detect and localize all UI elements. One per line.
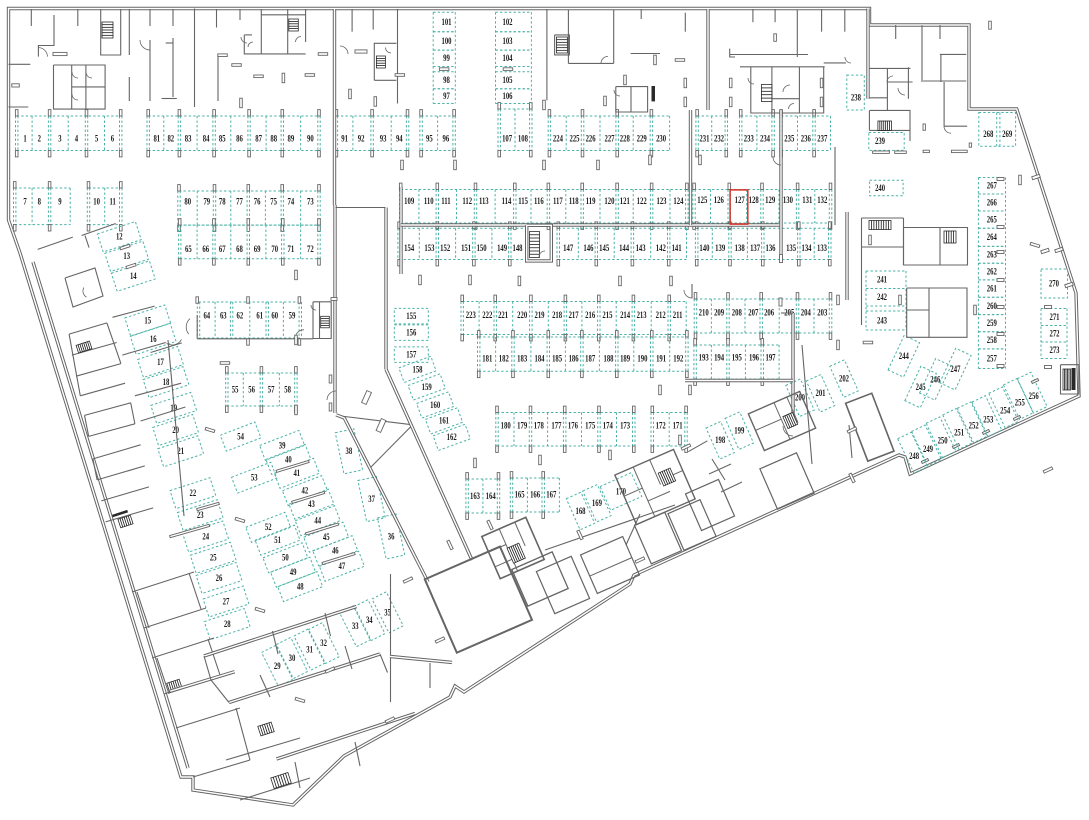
svg-text:171: 171 <box>673 420 683 430</box>
svg-text:71: 71 <box>288 244 295 254</box>
svg-text:211: 211 <box>673 310 683 320</box>
svg-text:115: 115 <box>518 196 528 206</box>
svg-text:207: 207 <box>748 307 758 317</box>
svg-text:45: 45 <box>323 532 330 542</box>
svg-text:8: 8 <box>38 196 41 206</box>
svg-text:153: 153 <box>424 243 434 253</box>
svg-text:233: 233 <box>744 133 754 143</box>
svg-text:206: 206 <box>764 307 774 317</box>
svg-text:236: 236 <box>801 133 811 143</box>
svg-text:53: 53 <box>251 472 258 482</box>
svg-text:14: 14 <box>130 271 137 281</box>
svg-text:41: 41 <box>293 468 300 478</box>
svg-text:135: 135 <box>786 243 796 253</box>
svg-text:141: 141 <box>672 243 682 253</box>
svg-text:123: 123 <box>656 196 666 206</box>
svg-text:216: 216 <box>585 310 595 320</box>
svg-text:269: 269 <box>1002 129 1012 139</box>
svg-text:182: 182 <box>499 353 509 363</box>
svg-text:76: 76 <box>254 196 261 206</box>
svg-text:91: 91 <box>341 133 348 143</box>
svg-text:69: 69 <box>254 244 261 254</box>
svg-text:197: 197 <box>765 352 775 362</box>
svg-text:28: 28 <box>224 619 231 629</box>
svg-text:82: 82 <box>167 133 174 143</box>
svg-text:95: 95 <box>426 133 433 143</box>
svg-text:193: 193 <box>699 352 709 362</box>
svg-text:74: 74 <box>288 196 295 206</box>
svg-text:126: 126 <box>714 195 724 205</box>
svg-text:235: 235 <box>784 133 794 143</box>
svg-text:44: 44 <box>314 515 321 525</box>
svg-text:213: 213 <box>637 310 647 320</box>
svg-text:208: 208 <box>732 307 742 317</box>
svg-text:256: 256 <box>1029 391 1039 401</box>
svg-text:177: 177 <box>551 420 561 430</box>
svg-text:254: 254 <box>1000 406 1010 416</box>
svg-text:265: 265 <box>987 214 997 224</box>
svg-text:59: 59 <box>289 310 296 320</box>
svg-text:163: 163 <box>470 491 480 501</box>
svg-text:139: 139 <box>715 243 725 253</box>
svg-text:12: 12 <box>116 232 123 242</box>
svg-text:257: 257 <box>987 353 997 363</box>
svg-text:162: 162 <box>447 432 457 442</box>
svg-text:29: 29 <box>274 661 281 671</box>
svg-text:140: 140 <box>699 243 709 253</box>
svg-text:223: 223 <box>466 310 476 320</box>
svg-text:68: 68 <box>236 244 243 254</box>
svg-text:260: 260 <box>987 301 997 311</box>
svg-text:149: 149 <box>497 243 507 253</box>
svg-text:219: 219 <box>534 310 544 320</box>
svg-text:175: 175 <box>585 420 595 430</box>
svg-text:83: 83 <box>185 133 192 143</box>
svg-text:152: 152 <box>440 243 450 253</box>
svg-text:229: 229 <box>637 133 647 143</box>
svg-text:148: 148 <box>512 243 522 253</box>
svg-text:209: 209 <box>714 307 724 317</box>
svg-text:89: 89 <box>288 133 295 143</box>
svg-text:79: 79 <box>203 196 210 206</box>
svg-text:218: 218 <box>552 310 562 320</box>
svg-text:131: 131 <box>802 195 812 205</box>
svg-text:262: 262 <box>987 266 997 276</box>
svg-text:144: 144 <box>619 243 629 253</box>
svg-text:65: 65 <box>185 244 192 254</box>
svg-text:31: 31 <box>306 644 313 654</box>
svg-text:270: 270 <box>1049 278 1059 288</box>
svg-text:242: 242 <box>877 292 887 302</box>
svg-text:227: 227 <box>604 133 614 143</box>
svg-text:168: 168 <box>575 506 585 516</box>
svg-text:96: 96 <box>443 133 450 143</box>
svg-text:81: 81 <box>153 133 160 143</box>
svg-text:54: 54 <box>237 431 244 441</box>
svg-text:222: 222 <box>482 310 492 320</box>
svg-text:204: 204 <box>801 307 811 317</box>
svg-text:244: 244 <box>899 351 909 361</box>
svg-text:184: 184 <box>534 353 544 363</box>
svg-text:102: 102 <box>502 17 512 27</box>
svg-text:27: 27 <box>223 596 230 606</box>
svg-text:156: 156 <box>406 327 416 337</box>
svg-text:110: 110 <box>424 196 434 206</box>
svg-text:180: 180 <box>501 420 511 430</box>
svg-text:234: 234 <box>760 133 770 143</box>
svg-text:132: 132 <box>817 195 827 205</box>
svg-text:221: 221 <box>498 310 508 320</box>
svg-text:189: 189 <box>620 353 630 363</box>
svg-text:34: 34 <box>366 615 373 625</box>
svg-text:84: 84 <box>203 133 210 143</box>
svg-text:64: 64 <box>203 310 210 320</box>
svg-text:88: 88 <box>270 133 277 143</box>
svg-text:166: 166 <box>530 490 540 500</box>
svg-text:24: 24 <box>202 531 209 541</box>
svg-text:43: 43 <box>308 499 315 509</box>
svg-text:119: 119 <box>586 196 596 206</box>
svg-text:183: 183 <box>517 353 527 363</box>
svg-text:194: 194 <box>714 352 724 362</box>
svg-text:176: 176 <box>568 420 578 430</box>
svg-text:17: 17 <box>157 357 164 367</box>
svg-text:120: 120 <box>604 196 614 206</box>
svg-text:52: 52 <box>265 522 272 532</box>
svg-text:117: 117 <box>553 196 563 206</box>
svg-text:33: 33 <box>352 621 359 631</box>
svg-text:214: 214 <box>620 310 630 320</box>
svg-text:106: 106 <box>502 91 512 101</box>
svg-text:136: 136 <box>765 243 775 253</box>
svg-text:264: 264 <box>987 232 997 242</box>
svg-text:85: 85 <box>219 133 226 143</box>
svg-text:75: 75 <box>270 196 277 206</box>
svg-text:60: 60 <box>271 310 278 320</box>
svg-text:196: 196 <box>749 352 759 362</box>
svg-text:190: 190 <box>637 353 647 363</box>
svg-text:267: 267 <box>987 181 997 191</box>
svg-text:158: 158 <box>412 364 422 374</box>
svg-text:241: 241 <box>877 275 887 285</box>
svg-text:202: 202 <box>839 373 849 383</box>
svg-text:50: 50 <box>282 553 289 563</box>
svg-text:237: 237 <box>817 133 827 143</box>
svg-text:172: 172 <box>656 420 666 430</box>
svg-text:23: 23 <box>197 510 204 520</box>
svg-text:179: 179 <box>517 420 527 430</box>
svg-text:174: 174 <box>603 420 613 430</box>
svg-text:57: 57 <box>268 384 275 394</box>
svg-text:113: 113 <box>479 196 489 206</box>
svg-text:228: 228 <box>620 133 630 143</box>
svg-text:22: 22 <box>190 488 197 498</box>
svg-text:72: 72 <box>307 244 314 254</box>
svg-text:165: 165 <box>515 490 525 500</box>
svg-text:161: 161 <box>439 416 449 426</box>
svg-text:129: 129 <box>765 195 775 205</box>
svg-text:67: 67 <box>219 244 226 254</box>
svg-text:98: 98 <box>443 75 450 85</box>
svg-text:195: 195 <box>732 352 742 362</box>
svg-text:70: 70 <box>271 244 278 254</box>
svg-text:73: 73 <box>307 196 314 206</box>
svg-text:48: 48 <box>297 581 304 591</box>
svg-text:6: 6 <box>111 133 114 143</box>
svg-text:55: 55 <box>232 384 239 394</box>
svg-text:111: 111 <box>441 196 450 206</box>
svg-text:191: 191 <box>656 353 666 363</box>
svg-text:271: 271 <box>1049 312 1059 322</box>
svg-text:215: 215 <box>602 310 612 320</box>
svg-text:272: 272 <box>1049 329 1059 339</box>
svg-text:273: 273 <box>1049 345 1059 355</box>
svg-text:181: 181 <box>482 353 492 363</box>
svg-text:42: 42 <box>302 485 309 495</box>
svg-text:32: 32 <box>320 638 327 648</box>
svg-text:47: 47 <box>339 561 346 571</box>
svg-text:103: 103 <box>502 36 512 46</box>
svg-text:39: 39 <box>279 440 286 450</box>
svg-text:112: 112 <box>462 196 472 206</box>
svg-text:225: 225 <box>569 133 579 143</box>
svg-text:188: 188 <box>603 353 613 363</box>
svg-text:258: 258 <box>987 335 997 345</box>
svg-text:92: 92 <box>358 133 365 143</box>
svg-text:147: 147 <box>563 243 573 253</box>
svg-text:101: 101 <box>441 17 451 27</box>
svg-text:173: 173 <box>620 420 630 430</box>
svg-text:169: 169 <box>592 498 602 508</box>
svg-text:100: 100 <box>441 36 451 46</box>
svg-text:18: 18 <box>163 377 170 387</box>
svg-text:143: 143 <box>636 243 646 253</box>
svg-text:13: 13 <box>123 251 130 261</box>
svg-text:150: 150 <box>477 243 487 253</box>
svg-text:185: 185 <box>552 353 562 363</box>
svg-text:25: 25 <box>210 553 217 563</box>
svg-text:243: 243 <box>877 315 887 325</box>
svg-text:251: 251 <box>954 427 964 437</box>
svg-text:255: 255 <box>1015 397 1025 407</box>
svg-text:210: 210 <box>699 307 709 317</box>
svg-text:266: 266 <box>987 197 997 207</box>
svg-text:80: 80 <box>184 196 191 206</box>
svg-text:157: 157 <box>406 349 416 359</box>
svg-text:108: 108 <box>518 133 528 143</box>
svg-text:15: 15 <box>144 315 151 325</box>
svg-text:9: 9 <box>58 196 61 206</box>
svg-text:199: 199 <box>734 425 744 435</box>
svg-text:97: 97 <box>443 91 450 101</box>
svg-text:248: 248 <box>909 451 919 461</box>
svg-text:186: 186 <box>569 353 579 363</box>
svg-text:226: 226 <box>586 133 596 143</box>
svg-text:36: 36 <box>388 531 395 541</box>
svg-text:160: 160 <box>430 400 440 410</box>
svg-text:187: 187 <box>585 353 595 363</box>
svg-text:253: 253 <box>983 414 993 424</box>
svg-text:178: 178 <box>534 420 544 430</box>
svg-text:105: 105 <box>502 75 512 85</box>
svg-text:151: 151 <box>461 243 471 253</box>
svg-text:146: 146 <box>583 243 593 253</box>
svg-text:121: 121 <box>620 196 630 206</box>
svg-text:1: 1 <box>23 133 26 143</box>
svg-text:231: 231 <box>699 133 709 143</box>
svg-text:220: 220 <box>517 310 527 320</box>
svg-text:198: 198 <box>715 435 725 445</box>
svg-text:268: 268 <box>983 129 993 139</box>
svg-text:10: 10 <box>93 196 100 206</box>
svg-text:133: 133 <box>817 243 827 253</box>
svg-text:142: 142 <box>656 243 666 253</box>
svg-text:137: 137 <box>750 243 760 253</box>
svg-text:203: 203 <box>817 307 827 317</box>
svg-text:238: 238 <box>851 92 861 102</box>
svg-text:249: 249 <box>923 444 933 454</box>
svg-text:30: 30 <box>289 653 296 663</box>
svg-text:240: 240 <box>875 183 885 193</box>
svg-text:78: 78 <box>219 196 226 206</box>
svg-text:56: 56 <box>248 384 255 394</box>
svg-text:66: 66 <box>202 244 209 254</box>
svg-text:145: 145 <box>599 243 609 253</box>
svg-text:217: 217 <box>569 310 579 320</box>
svg-text:94: 94 <box>396 133 403 143</box>
svg-text:134: 134 <box>801 243 811 253</box>
svg-text:130: 130 <box>783 195 793 205</box>
svg-text:61: 61 <box>256 310 263 320</box>
svg-text:125: 125 <box>697 195 707 205</box>
svg-text:127: 127 <box>735 195 745 205</box>
svg-text:250: 250 <box>938 436 948 446</box>
svg-text:259: 259 <box>987 318 997 328</box>
svg-text:58: 58 <box>284 384 291 394</box>
svg-text:93: 93 <box>380 133 387 143</box>
svg-text:138: 138 <box>735 243 745 253</box>
svg-text:5: 5 <box>95 133 98 143</box>
svg-text:252: 252 <box>969 421 979 431</box>
svg-text:230: 230 <box>656 133 666 143</box>
svg-text:124: 124 <box>673 196 683 206</box>
svg-text:167: 167 <box>546 490 556 500</box>
svg-text:51: 51 <box>274 535 281 545</box>
svg-text:263: 263 <box>987 250 997 260</box>
svg-text:11: 11 <box>110 196 116 206</box>
svg-text:246: 246 <box>930 374 940 384</box>
svg-text:38: 38 <box>346 446 353 456</box>
svg-text:77: 77 <box>236 196 243 206</box>
svg-text:109: 109 <box>404 196 414 206</box>
svg-text:2: 2 <box>38 133 41 143</box>
svg-text:46: 46 <box>332 545 339 555</box>
svg-text:90: 90 <box>307 133 314 143</box>
svg-text:114: 114 <box>502 196 512 206</box>
svg-text:154: 154 <box>404 243 414 253</box>
svg-text:107: 107 <box>502 133 512 143</box>
svg-text:4: 4 <box>75 133 78 143</box>
svg-text:104: 104 <box>502 53 512 63</box>
svg-text:232: 232 <box>714 133 724 143</box>
svg-text:63: 63 <box>220 310 227 320</box>
svg-text:212: 212 <box>656 310 666 320</box>
svg-text:192: 192 <box>673 353 683 363</box>
svg-text:118: 118 <box>569 196 579 206</box>
svg-text:99: 99 <box>443 53 450 63</box>
svg-text:155: 155 <box>406 311 416 321</box>
svg-text:159: 159 <box>422 382 432 392</box>
svg-text:86: 86 <box>236 133 243 143</box>
svg-text:247: 247 <box>950 364 960 374</box>
svg-text:122: 122 <box>637 196 647 206</box>
svg-text:224: 224 <box>553 133 563 143</box>
svg-text:62: 62 <box>237 310 244 320</box>
svg-text:37: 37 <box>368 494 375 504</box>
svg-text:87: 87 <box>255 133 262 143</box>
svg-text:128: 128 <box>749 195 759 205</box>
svg-text:7: 7 <box>23 196 26 206</box>
svg-text:40: 40 <box>285 454 292 464</box>
svg-text:16: 16 <box>150 334 157 344</box>
svg-text:261: 261 <box>987 283 997 293</box>
svg-text:3: 3 <box>58 133 61 143</box>
svg-text:239: 239 <box>875 136 885 146</box>
svg-text:116: 116 <box>534 196 544 206</box>
svg-text:164: 164 <box>486 491 496 501</box>
svg-text:201: 201 <box>815 388 825 398</box>
svg-text:35: 35 <box>384 607 391 617</box>
svg-text:49: 49 <box>290 567 297 577</box>
svg-text:26: 26 <box>216 573 223 583</box>
